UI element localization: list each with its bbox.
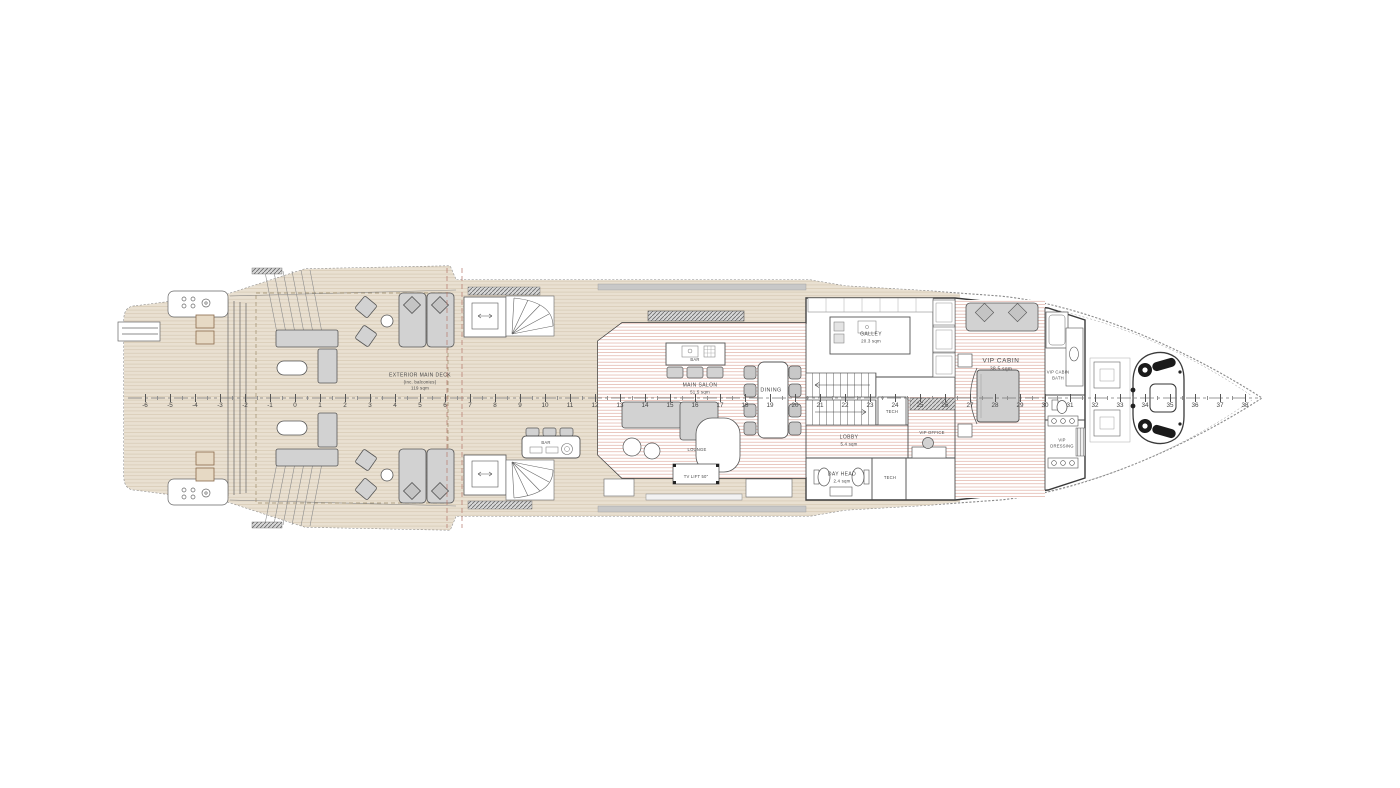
side-table — [381, 469, 393, 481]
aft-mooring-platform-port — [168, 291, 228, 317]
bar-stool — [543, 428, 556, 436]
nightstand — [958, 424, 972, 437]
side-table — [623, 438, 641, 456]
bar-stool — [667, 367, 683, 378]
aft-mooring-platform-starboard — [168, 479, 228, 505]
galley-counter — [808, 298, 933, 312]
sideboard — [648, 311, 744, 321]
toilet — [1057, 401, 1067, 414]
desk-chair — [923, 438, 934, 449]
dumbwaiter-port — [464, 297, 506, 337]
coffee-table — [277, 361, 307, 375]
vip-sofa — [966, 303, 1038, 331]
nightstand — [958, 354, 972, 367]
dining-chair — [744, 422, 756, 435]
sink — [852, 468, 864, 486]
vip-bed — [977, 370, 1019, 422]
side-table — [381, 315, 393, 327]
deck-hatch — [1094, 410, 1120, 436]
window-strip — [646, 494, 742, 500]
staircase-starboard — [506, 460, 554, 500]
bar-stool — [560, 428, 573, 436]
balcony-rail-starboard — [598, 506, 806, 512]
salon-bar — [666, 343, 725, 378]
bar-stool — [526, 428, 539, 436]
yacht-main-deck-plan: -6-5-4-3-2-10123456789101112131415161718… — [0, 0, 1400, 788]
sofa — [318, 349, 337, 383]
sofa — [622, 402, 682, 428]
tv-lift — [673, 464, 719, 484]
sofa — [318, 413, 337, 447]
dining-chair — [789, 404, 801, 417]
deck-locker — [604, 479, 634, 496]
sofa — [276, 449, 338, 466]
exterior-bar — [522, 428, 580, 458]
deck-hatch — [1094, 362, 1120, 388]
deck-locker — [746, 479, 792, 497]
deck-plan-drawing — [0, 0, 1400, 788]
balcony-rail-port — [598, 284, 806, 290]
side-table — [644, 443, 660, 459]
crew-ladder — [1076, 428, 1085, 456]
dining-chair — [744, 384, 756, 397]
dining-chair — [744, 404, 756, 417]
dining-chair — [789, 366, 801, 379]
sink — [1070, 347, 1079, 361]
bar-stool — [707, 367, 723, 378]
deck-mat — [468, 501, 532, 509]
dining-chair — [789, 384, 801, 397]
deck-mat — [468, 287, 540, 295]
coffee-table — [277, 421, 307, 435]
dining-table — [758, 362, 788, 438]
tech-room-upper — [878, 397, 906, 425]
toilet — [818, 468, 830, 486]
bar-stool — [687, 367, 703, 378]
spiral-staircase-port — [506, 296, 554, 336]
lobby-floor — [806, 425, 908, 458]
dining-chair — [744, 366, 756, 379]
stowage-lockers — [933, 300, 955, 377]
passerelle — [118, 322, 160, 341]
dining-chair — [789, 422, 801, 435]
dumbwaiter-starboard — [464, 455, 506, 495]
office-closet — [910, 398, 955, 410]
sofa — [276, 330, 338, 347]
bar-counter — [666, 343, 725, 365]
